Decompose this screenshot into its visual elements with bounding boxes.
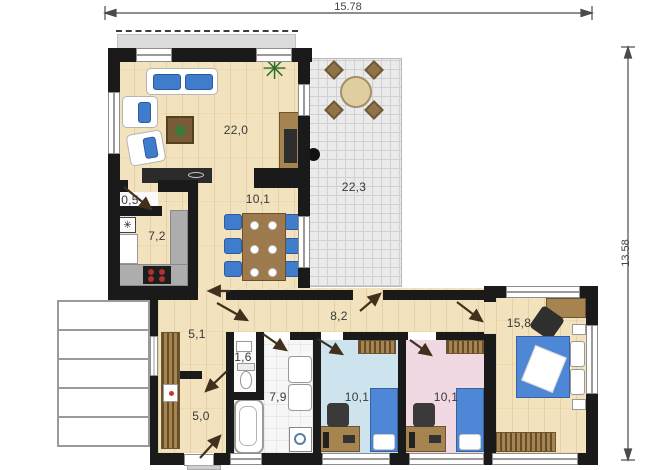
- wall: [150, 298, 158, 336]
- wall: [226, 392, 264, 400]
- toilet-tank: [237, 363, 255, 371]
- wall: [108, 206, 162, 216]
- dining-chair: [224, 214, 242, 230]
- bookshelf: [358, 340, 396, 354]
- wall: [578, 453, 598, 465]
- stove: [143, 266, 171, 284]
- nightstand: [572, 324, 586, 335]
- wall: [436, 332, 484, 340]
- wall: [262, 453, 322, 465]
- area-label-bathroom: 7,9: [269, 390, 287, 404]
- desk-laptop: [343, 435, 355, 443]
- wall: [118, 180, 128, 192]
- plate: [268, 221, 277, 230]
- armchair: [125, 129, 166, 167]
- window: [256, 48, 292, 62]
- pillow: [570, 341, 585, 367]
- wall: [298, 116, 310, 216]
- burner: [148, 269, 154, 275]
- armchair-cushion: [142, 136, 158, 159]
- office-chair: [413, 403, 435, 427]
- hall-cabinet: [163, 384, 178, 402]
- cabinet-detail: [169, 391, 174, 396]
- area-label-dining: 10,1: [246, 192, 271, 206]
- wall: [484, 286, 506, 298]
- pillow: [570, 369, 585, 395]
- dimension-height-label: 13.58: [620, 233, 632, 273]
- dimension-width-label: 15.78: [334, 1, 362, 13]
- office-chair: [327, 403, 349, 427]
- area-label-entry: 5,0: [192, 409, 210, 423]
- wall: [254, 168, 310, 188]
- window: [409, 453, 484, 465]
- bathtub: [234, 399, 264, 454]
- armchair: [122, 96, 158, 128]
- roof-overhang-dashed-line: [116, 30, 298, 32]
- burner: [159, 269, 165, 275]
- wall: [226, 290, 353, 300]
- bathtub-inner: [239, 406, 257, 446]
- freezer-icon: ✳: [119, 217, 136, 233]
- bedroom-shelf: [494, 432, 556, 452]
- window: [506, 286, 580, 298]
- terrace-table: [340, 76, 372, 108]
- window: [230, 453, 262, 465]
- dining-table: [242, 213, 286, 281]
- area-label-closet: 0,5: [121, 193, 139, 207]
- toilet-bowl: [240, 371, 252, 389]
- sofa: [146, 68, 218, 95]
- window: [492, 453, 578, 465]
- coffee-table: [166, 116, 194, 144]
- plate: [250, 245, 259, 254]
- wall: [390, 453, 409, 465]
- wall: [290, 332, 315, 340]
- wall: [108, 154, 120, 300]
- sofa-cushion: [153, 74, 181, 90]
- bed: [456, 388, 484, 452]
- wall: [484, 453, 492, 465]
- dining-chair: [224, 238, 242, 254]
- wall: [398, 332, 406, 453]
- area-label-kitchen: 7,2: [148, 229, 166, 243]
- kitchen-counter: [170, 210, 188, 266]
- plate: [268, 268, 277, 277]
- sofa-cushion: [185, 74, 213, 90]
- bedroom-door-floor: [484, 302, 496, 334]
- window: [108, 92, 120, 154]
- bathroom-sink: [288, 356, 312, 383]
- desk-item: [323, 432, 329, 448]
- bathroom-sink: [288, 384, 312, 411]
- wall: [172, 48, 256, 62]
- desk-laptop: [429, 435, 441, 443]
- tv: [284, 129, 297, 163]
- wall: [108, 48, 120, 92]
- plate: [250, 221, 259, 230]
- table-plant: [175, 125, 186, 136]
- area-label-child-right: 10,1: [434, 390, 459, 404]
- burner: [159, 276, 165, 282]
- area-label-terrace: 22,3: [342, 180, 367, 194]
- desk: [318, 426, 360, 452]
- nightstand: [572, 399, 586, 410]
- pillow: [459, 434, 481, 450]
- area-label-corridor: 8,2: [330, 309, 348, 323]
- window: [298, 84, 310, 116]
- exterior-stairs: [57, 300, 150, 447]
- pillow: [373, 434, 395, 450]
- window: [322, 453, 390, 465]
- sideboard-detail: [188, 172, 204, 178]
- doormat: [187, 465, 221, 470]
- wall: [298, 48, 310, 84]
- wall: [180, 371, 202, 379]
- dining-chair: [224, 261, 242, 277]
- area-label-living: 22,0: [224, 123, 249, 137]
- wall: [214, 453, 230, 465]
- bookshelf: [446, 340, 484, 354]
- fridge: [118, 234, 138, 264]
- area-label-child-left: 10,1: [345, 390, 370, 404]
- wall: [586, 286, 598, 325]
- window: [150, 336, 158, 376]
- area-label-wc: 1,6: [234, 350, 252, 364]
- area-label-bedroom: 15,8: [507, 316, 532, 330]
- armchair-cushion: [138, 102, 151, 123]
- washer-drum: [294, 433, 306, 445]
- terrace-door: [298, 216, 310, 268]
- floor-plan: ✳ ✳: [0, 0, 654, 470]
- desk-item: [409, 432, 415, 448]
- area-label-hall: 5,1: [188, 327, 206, 341]
- wall: [188, 180, 198, 286]
- wall: [256, 332, 264, 394]
- burner: [148, 276, 154, 282]
- desk: [404, 426, 446, 452]
- plate: [250, 268, 259, 277]
- wall: [298, 268, 310, 288]
- bed: [370, 388, 398, 452]
- wall: [383, 290, 484, 300]
- washing-machine: [289, 427, 312, 452]
- wall: [150, 376, 158, 465]
- window: [586, 325, 598, 394]
- window: [136, 48, 172, 62]
- wall: [484, 334, 496, 453]
- plate: [268, 245, 277, 254]
- wall: [313, 332, 321, 453]
